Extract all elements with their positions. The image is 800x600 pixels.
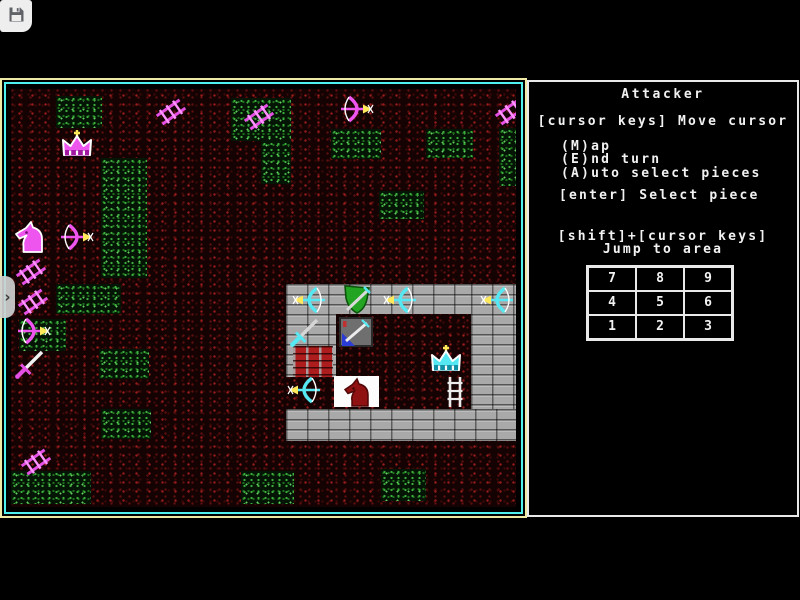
map-terrain: [11, 89, 516, 507]
attacker-sword-piece[interactable]: [13, 349, 45, 381]
attacker-archer-piece[interactable]: [59, 223, 95, 251]
instruction-jump-combo: [shift]+[cursor keys]: [529, 230, 797, 244]
armory-tile: [339, 317, 373, 347]
jump-area-grid: 7 8 9 4 5 6 1 2 3: [586, 265, 734, 341]
attacker-archer-piece[interactable]: [339, 95, 375, 123]
castle: [286, 284, 516, 441]
jump-cell-6: 6: [684, 291, 732, 315]
jump-cell-8: 8: [636, 267, 684, 291]
jump-cell-2: 2: [636, 315, 684, 339]
instruction-end-turn: (E)nd turn: [561, 153, 797, 167]
defender-sword-piece[interactable]: [288, 317, 320, 349]
grass-patch: [101, 409, 151, 439]
defender-shield-piece[interactable]: [338, 284, 374, 315]
siege-ladder-icon: [12, 254, 50, 291]
instruction-auto-select: (A)uto select pieces: [561, 167, 797, 181]
siege-ladder-icon: [491, 94, 516, 131]
defender-archer-piece[interactable]: [382, 286, 418, 314]
attacker-archer-piece[interactable]: [16, 317, 52, 345]
instruction-move-cursor: [cursor keys] Move cursor: [529, 115, 797, 129]
castle-wall: [286, 409, 516, 441]
defender-archer-piece[interactable]: [479, 286, 515, 314]
grass-patch: [99, 349, 149, 379]
instruction-select-piece: [enter] Select piece: [559, 189, 797, 203]
grass-patch: [261, 141, 291, 184]
grass-patch: [101, 158, 147, 278]
attacker-king-piece[interactable]: [59, 129, 95, 159]
instruction-map: (M)ap: [561, 140, 797, 154]
map-inner-border: [4, 82, 523, 514]
defender-archer-piece[interactable]: [286, 376, 322, 404]
grass-patch: [56, 284, 121, 314]
attacker-knight-piece[interactable]: [13, 221, 47, 253]
jump-cell-3: 3: [684, 315, 732, 339]
instruction-jump-label: Jump to area: [529, 243, 797, 257]
save-button[interactable]: [0, 0, 32, 32]
panel-title: Attacker: [529, 87, 797, 102]
jump-cell-1: 1: [588, 315, 636, 339]
grass-patch: [241, 471, 294, 504]
castle-ladder-icon: [444, 376, 466, 408]
defender-archer-piece[interactable]: [291, 286, 327, 314]
defender-knight-piece[interactable]: [334, 376, 379, 407]
grass-patch: [331, 129, 381, 159]
grass-patch: [499, 128, 516, 186]
save-icon: [7, 5, 26, 28]
game-map[interactable]: [0, 78, 527, 518]
jump-cell-5: 5: [636, 291, 684, 315]
red-brick-wall: [293, 346, 333, 377]
jump-cell-4: 4: [588, 291, 636, 315]
grass-patch: [56, 96, 102, 128]
jump-cell-7: 7: [588, 267, 636, 291]
side-panel: Attacker [cursor keys] Move cursor (M)ap…: [527, 80, 799, 517]
grass-patch: [426, 129, 473, 158]
game-screen: › Attacker [cursor keys] Move cursor (M)…: [0, 0, 800, 600]
grass-patch: [379, 191, 424, 219]
siege-ladder-icon: [152, 94, 190, 131]
defender-king-piece[interactable]: [428, 344, 464, 374]
grass-patch: [11, 471, 91, 504]
siege-ladder-icon: [14, 284, 52, 321]
chevron-right-icon: ›: [4, 288, 10, 306]
grass-patch: [381, 469, 426, 501]
jump-cell-9: 9: [684, 267, 732, 291]
drawer-handle[interactable]: ›: [0, 276, 15, 318]
